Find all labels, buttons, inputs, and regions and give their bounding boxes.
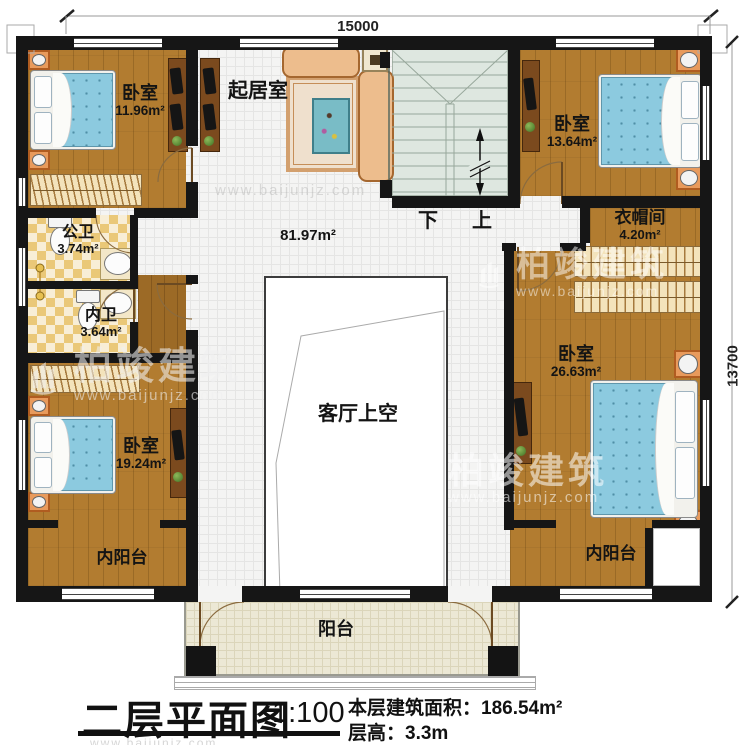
room-label-inner-balcony-left: 内阳台: [97, 549, 148, 568]
stairs-down-label: 下: [418, 210, 438, 232]
room-label-living-void: 客厅上空: [318, 403, 398, 425]
stairs-direction-arrow: [469, 128, 491, 196]
title-underline: [78, 731, 340, 736]
dimension-right: 13700: [725, 345, 742, 387]
floor-height-label: 层高：: [348, 723, 405, 744]
wall-segment: [16, 208, 96, 218]
room-label-bedroom-top-right: 卧室 13.64m²: [547, 115, 597, 150]
wall-segment: [24, 520, 58, 528]
wall-segment: [16, 353, 198, 363]
wall-segment: [652, 520, 700, 528]
room-label-private-bathroom: 内卫 3.64m²: [80, 307, 121, 339]
wall-segment: [580, 208, 590, 243]
stair-post: [380, 180, 392, 198]
window: [560, 588, 652, 600]
balcony-column: [186, 646, 216, 676]
room-label-cloakroom: 衣帽间 4.20m²: [615, 209, 666, 242]
window: [18, 248, 26, 306]
wall-outer-left: [16, 36, 28, 602]
stairs-steps: [392, 50, 508, 196]
floor-area-line: 本层建筑面积：186.54m²: [348, 693, 562, 720]
wall-segment: [562, 196, 712, 208]
linework-overlay: [0, 0, 750, 745]
living-room-area-label: 81.97m²: [280, 228, 336, 245]
door-opening: [198, 586, 242, 602]
wall-segment: [504, 520, 556, 528]
room-label-living-room: 起居室: [228, 80, 288, 102]
wall-segment: [160, 520, 198, 528]
window: [240, 38, 338, 48]
floor-area-label: 本层建筑面积：: [348, 698, 481, 719]
room-label-bedroom-right: 卧室 26.63m²: [551, 345, 601, 380]
wall-segment: [508, 36, 520, 208]
window: [556, 38, 654, 48]
wall-segment: [560, 243, 586, 251]
room-label-bedroom-top-left: 卧室 11.96m²: [115, 84, 165, 119]
room-label-public-bathroom: 公卫 3.74m²: [57, 224, 98, 256]
wall-segment: [186, 275, 198, 284]
stairs-up-label: 上: [472, 210, 492, 232]
floor-area-value: 186.54m²: [481, 698, 562, 719]
window: [702, 400, 710, 486]
wall-segment: [16, 281, 138, 289]
window: [18, 178, 26, 206]
drawing-scale: 1:100: [272, 697, 345, 730]
window: [62, 588, 154, 600]
wall-segment: [645, 528, 653, 590]
dimension-top: 15000: [337, 18, 379, 35]
room-label-inner-balcony-right: 内阳台: [586, 545, 637, 564]
room-label-balcony: 阳台: [318, 620, 354, 640]
room-label-bedroom-bottom-left: 卧室 19.24m²: [116, 437, 166, 472]
stair-post: [380, 52, 390, 68]
door-arcs: [96, 148, 562, 646]
wall-segment: [186, 182, 198, 208]
floor-height-value: 3.3m: [405, 723, 448, 744]
wall-segment: [130, 215, 138, 285]
drawing-title: 二层平面图: [82, 688, 292, 745]
window: [702, 86, 710, 160]
wall-segment: [134, 208, 198, 218]
wall-segment: [504, 243, 514, 530]
window: [74, 38, 162, 48]
balcony-column: [488, 646, 518, 676]
wall-segment: [392, 196, 518, 208]
window: [300, 589, 410, 599]
floor-plan-canvas: 卧室 11.96m² 起居室 81.97m² 卧室 13.64m² 衣帽间 4.…: [0, 0, 750, 745]
window: [18, 420, 26, 490]
door-opening: [448, 586, 492, 602]
door-leaves: [134, 148, 562, 646]
floor-height-line: 层高：3.3m: [348, 718, 448, 745]
wall-segment: [186, 330, 198, 586]
wall-segment: [186, 36, 198, 146]
